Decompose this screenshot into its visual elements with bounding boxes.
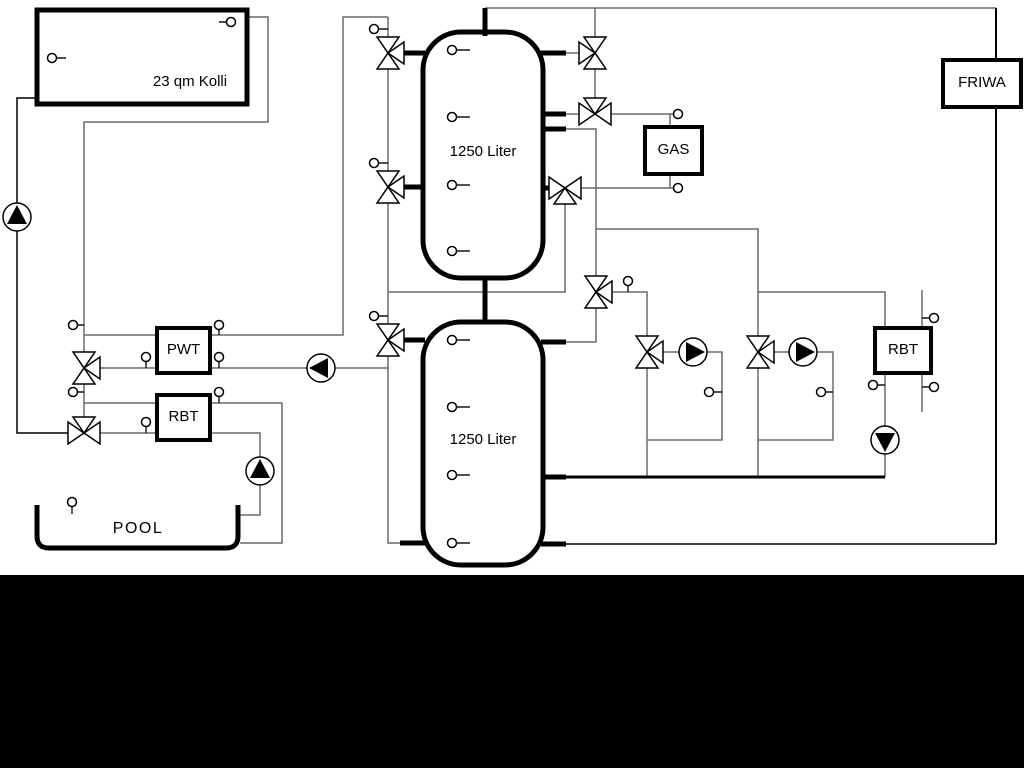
riser-three-way-valve-bottom	[377, 324, 404, 356]
rbt-left-sensor-icon	[215, 388, 224, 397]
tank-sensor-icon	[448, 247, 457, 256]
heating-circuit-1-pump-icon	[679, 338, 707, 366]
rbt-left-label: RBT	[157, 409, 210, 425]
riser-three-way-valve-middle	[377, 171, 404, 203]
tank-sensor-icon	[448, 336, 457, 345]
friwa-label: FRIWA	[943, 75, 1021, 91]
gas-flow-mixing-valve	[579, 98, 611, 125]
solar-line-sensor-icon	[69, 388, 78, 397]
gas-return-sensor-icon	[674, 184, 683, 193]
tank-sensor-icon	[448, 403, 457, 412]
collector-sensor-icon	[48, 54, 57, 63]
tank-diverter-valve	[585, 276, 612, 308]
rbt-pool-three-way-valve	[68, 417, 100, 444]
rbt-right-pump-icon	[871, 426, 899, 454]
pwt-sensor-icon	[142, 353, 151, 362]
collector-sensor-icon	[227, 18, 236, 27]
heating-circuit-2-sensor-icon	[817, 388, 826, 397]
pwt-sensor-icon	[215, 321, 224, 330]
tank-sensor-icon	[448, 471, 457, 480]
tank-upper-label: 1250 Liter	[423, 144, 543, 160]
rbt-right-label: RBT	[875, 342, 931, 358]
tank-sensor-icon	[448, 113, 457, 122]
riser-sensor-icon	[370, 312, 379, 321]
pwt-sensor-icon	[215, 353, 224, 362]
tank-sensor-icon	[448, 181, 457, 190]
solar-line-sensor-icon	[69, 321, 78, 330]
solar-pump-icon	[3, 203, 31, 231]
gas-label: GAS	[645, 142, 702, 158]
rbt-right-riser-sensor-icon	[930, 314, 939, 323]
tank-sensor-icon	[448, 46, 457, 55]
rbt-right-riser-sensor-icon	[930, 383, 939, 392]
pool-label: POOL	[98, 521, 178, 537]
equipment-boxes	[37, 10, 1021, 565]
tank-lower-label: 1250 Liter	[423, 432, 543, 448]
diverter-sensor-icon	[624, 277, 633, 286]
heating-circuit-1-mixing-valve	[636, 336, 663, 368]
tank-top-three-way-valve	[579, 37, 606, 69]
riser-sensor-icon	[370, 25, 379, 34]
heating-circuit-2-mixing-valve	[747, 336, 774, 368]
gas-flow-sensor-icon	[674, 110, 683, 119]
rbt-left-sensor-icon	[142, 418, 151, 427]
rbt-right-sensor-icon	[869, 381, 878, 390]
heating-circuit-2-pump-icon	[789, 338, 817, 366]
pwt-three-way-valve	[73, 352, 100, 384]
collector-label: 23 qm Kolli	[140, 74, 240, 90]
riser-three-way-valve-top	[377, 37, 404, 69]
bottom-black-band	[0, 575, 1024, 768]
pool-sensor-icon	[68, 498, 77, 507]
riser-sensor-icon	[370, 159, 379, 168]
tank-sensor-icon	[448, 539, 457, 548]
main-distribution-lines	[566, 8, 996, 544]
gas-return-three-way-valve	[549, 177, 581, 204]
pool-pump-icon	[246, 457, 274, 485]
pwt-charge-pump-icon	[307, 354, 335, 382]
heating-circuit-1-sensor-icon	[705, 388, 714, 397]
hydraulic-schematic: 23 qm Kolli 1250 Liter 1250 Liter GAS FR…	[0, 0, 1024, 768]
pwt-label: PWT	[157, 342, 210, 358]
